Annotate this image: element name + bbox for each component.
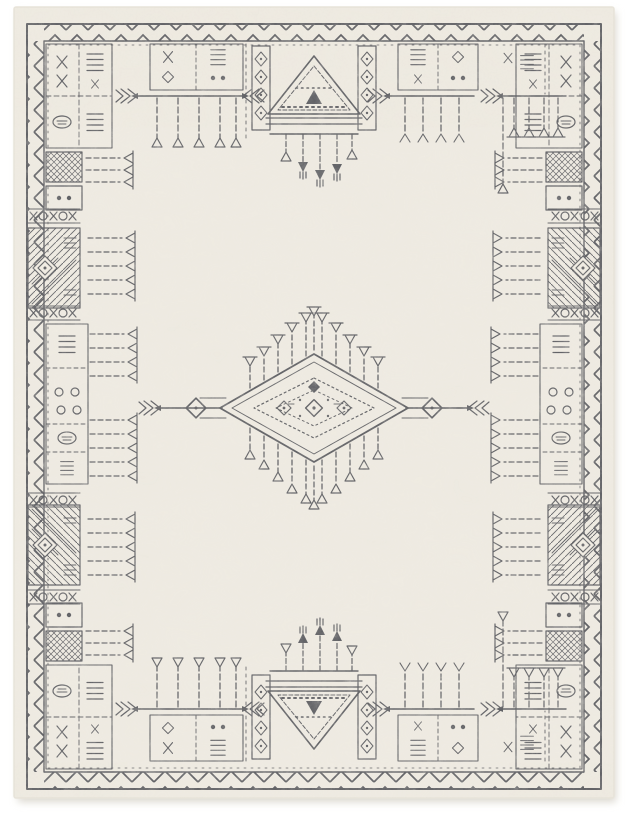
- chevron-band-right: [584, 41, 601, 772]
- chevron-band-bottom: [44, 772, 584, 788]
- chevron-band-top: [44, 25, 584, 41]
- rug-photo-canvas: [0, 0, 628, 825]
- rug-weave-grain: [14, 7, 614, 798]
- chevron-band-left: [27, 41, 44, 772]
- diagonal-block: [28, 228, 80, 308]
- rug-product-photo: [0, 0, 628, 825]
